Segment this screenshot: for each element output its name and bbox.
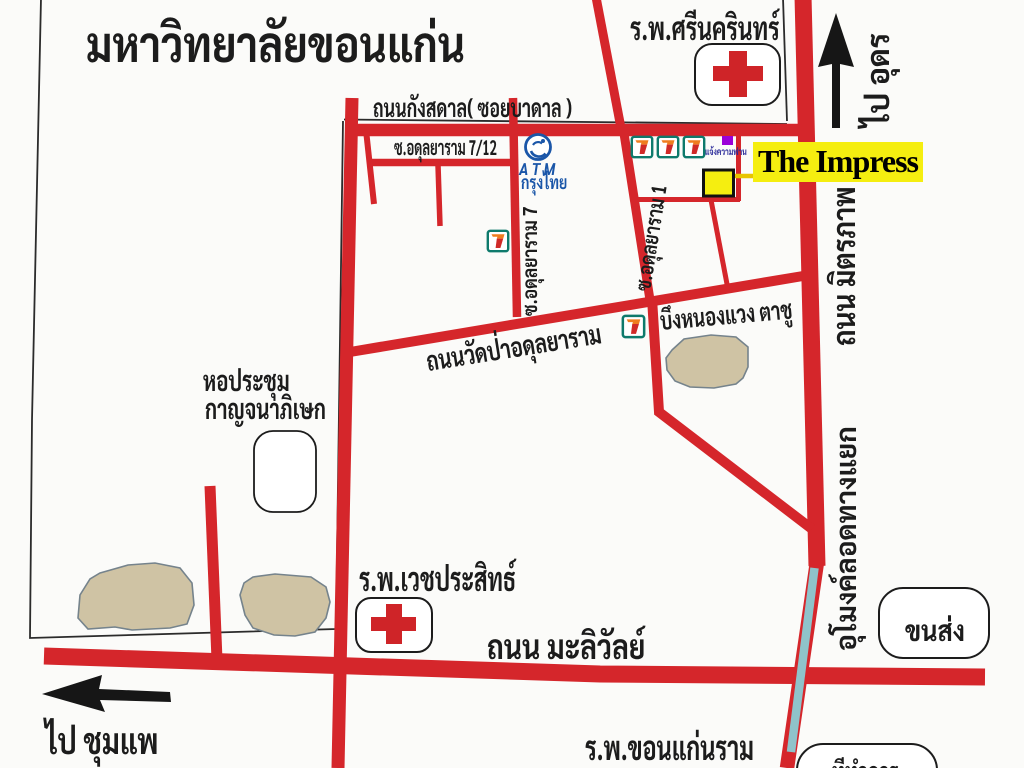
svg-text:The Impress: The Impress (758, 143, 919, 179)
